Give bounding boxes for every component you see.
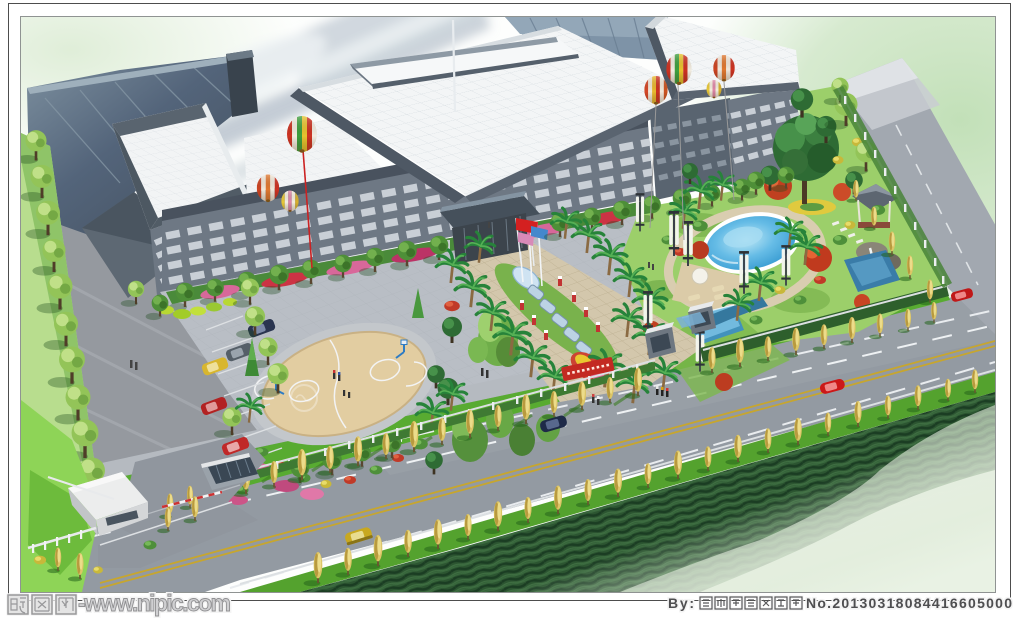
svg-text:By:: By: [668, 595, 694, 611]
svg-text:-www.nipic.com: -www.nipic.com [78, 590, 231, 616]
svg-text:No.20130318084416605000: No.20130318084416605000 [806, 595, 1012, 611]
